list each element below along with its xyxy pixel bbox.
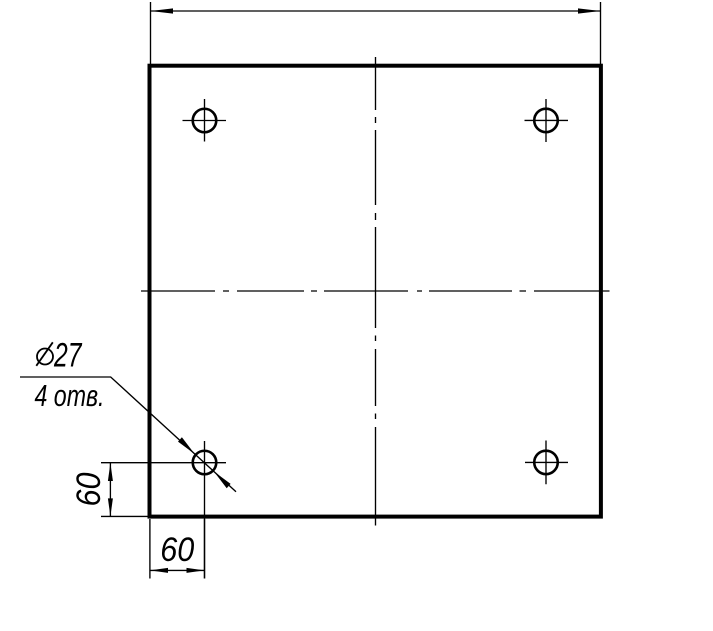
svg-text:60: 60 xyxy=(70,473,108,507)
svg-text:60: 60 xyxy=(160,531,194,569)
svg-text:27: 27 xyxy=(53,336,83,374)
svg-text:4 отв.: 4 отв. xyxy=(35,378,105,413)
